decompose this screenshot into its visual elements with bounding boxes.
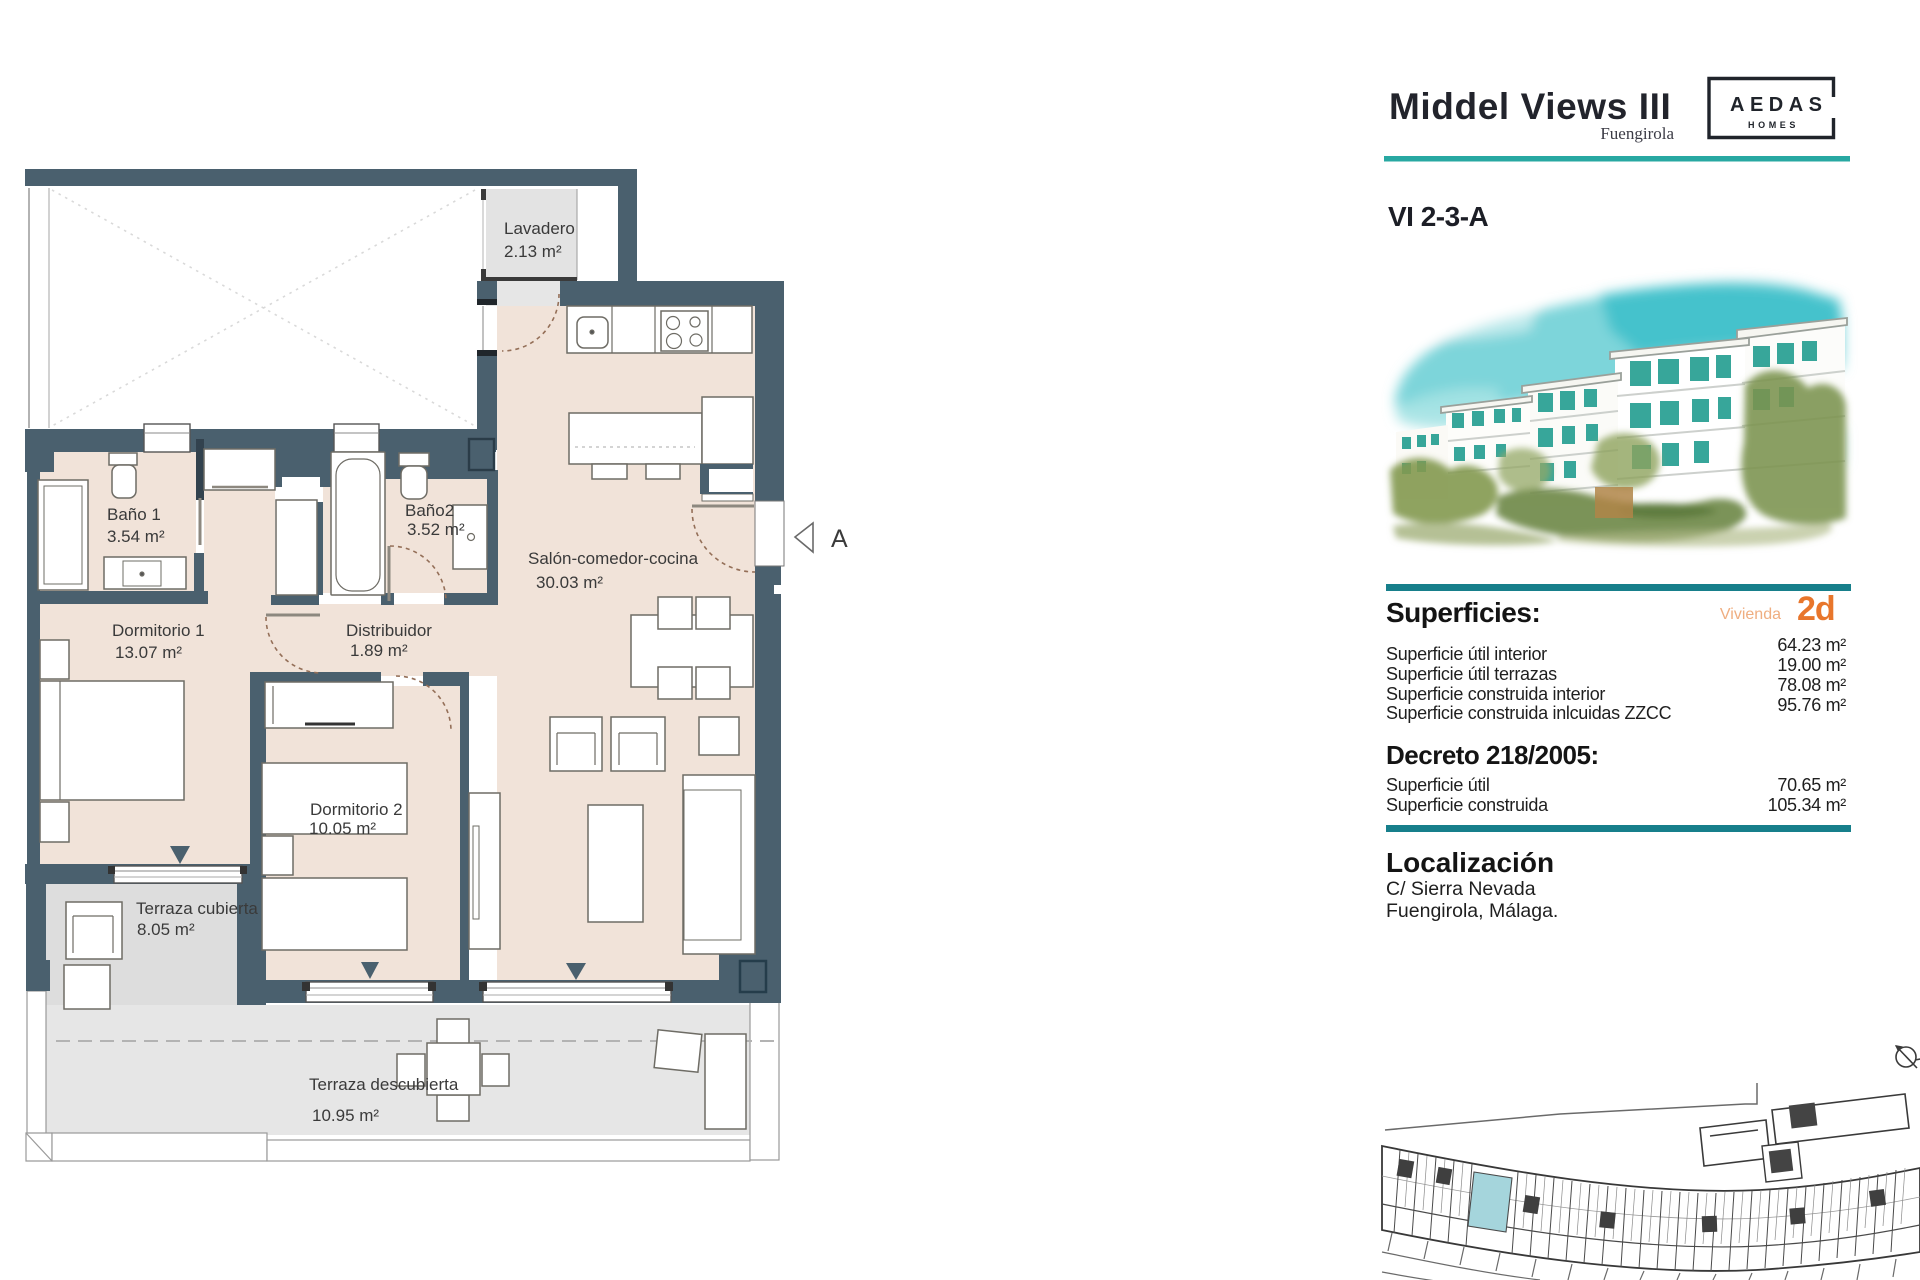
svg-text:Vivienda: Vivienda — [1720, 606, 1781, 623]
svg-text:95.76 m²: 95.76 m² — [1777, 695, 1846, 715]
svg-text:Terraza cubierta: Terraza cubierta — [136, 899, 258, 918]
svg-text:Fuengirola: Fuengirola — [1600, 124, 1674, 143]
svg-text:3.52 m²: 3.52 m² — [407, 520, 465, 539]
svg-text:C/ Sierra Nevada: C/ Sierra Nevada — [1386, 878, 1536, 900]
svg-text:2.13 m²: 2.13 m² — [504, 242, 562, 261]
svg-text:19.00 m²: 19.00 m² — [1777, 655, 1846, 675]
svg-text:Salón-comedor-cocina: Salón-comedor-cocina — [528, 549, 699, 568]
svg-text:Superficie construida interior: Superficie construida interior — [1386, 684, 1605, 704]
svg-text:Superficie construida: Superficie construida — [1386, 795, 1549, 815]
svg-text:13.07 m²: 13.07 m² — [115, 643, 182, 662]
svg-text:Terraza descubierta: Terraza descubierta — [309, 1075, 459, 1094]
svg-text:Fuengirola, Málaga.: Fuengirola, Málaga. — [1386, 900, 1558, 922]
svg-text:64.23 m²: 64.23 m² — [1777, 635, 1846, 655]
svg-text:Superficie útil terrazas: Superficie útil terrazas — [1386, 664, 1557, 684]
svg-text:2d: 2d — [1797, 590, 1835, 628]
svg-text:Superficies:: Superficies: — [1386, 597, 1540, 628]
svg-text:Dormitorio 2: Dormitorio 2 — [310, 800, 403, 819]
svg-text:Superficie útil interior: Superficie útil interior — [1386, 644, 1547, 664]
svg-text:Decreto 218/2005:: Decreto 218/2005: — [1386, 740, 1599, 770]
svg-text:HOMES: HOMES — [1748, 120, 1799, 130]
svg-text:Lavadero: Lavadero — [504, 219, 575, 238]
svg-text:8.05 m²: 8.05 m² — [137, 920, 195, 939]
svg-text:Localización: Localización — [1386, 847, 1554, 878]
svg-text:70.65 m²: 70.65 m² — [1777, 775, 1846, 795]
svg-text:Middel Views III: Middel Views III — [1389, 86, 1671, 127]
svg-text:Baño2: Baño2 — [405, 501, 454, 520]
svg-text:AEDAS: AEDAS — [1730, 94, 1828, 116]
svg-text:3.54 m²: 3.54 m² — [107, 527, 165, 546]
svg-text:1.89 m²: 1.89 m² — [350, 641, 408, 660]
svg-text:Dormitorio 1: Dormitorio 1 — [112, 621, 205, 640]
svg-text:Baño 1: Baño 1 — [107, 505, 161, 524]
svg-text:Superficie útil: Superficie útil — [1386, 775, 1490, 795]
svg-text:78.08 m²: 78.08 m² — [1777, 675, 1846, 695]
svg-text:10.05 m²: 10.05 m² — [309, 819, 376, 838]
svg-text:Superficie construida inlcuida: Superficie construida inlcuidas ZZCC — [1386, 703, 1672, 723]
svg-text:A: A — [831, 525, 848, 553]
svg-text:10.95 m²: 10.95 m² — [312, 1106, 379, 1125]
svg-text:105.34 m²: 105.34 m² — [1768, 795, 1847, 815]
svg-text:Distribuidor: Distribuidor — [346, 621, 432, 640]
svg-text:30.03 m²: 30.03 m² — [536, 573, 603, 592]
svg-text:VI 2-3-A: VI 2-3-A — [1388, 201, 1489, 232]
